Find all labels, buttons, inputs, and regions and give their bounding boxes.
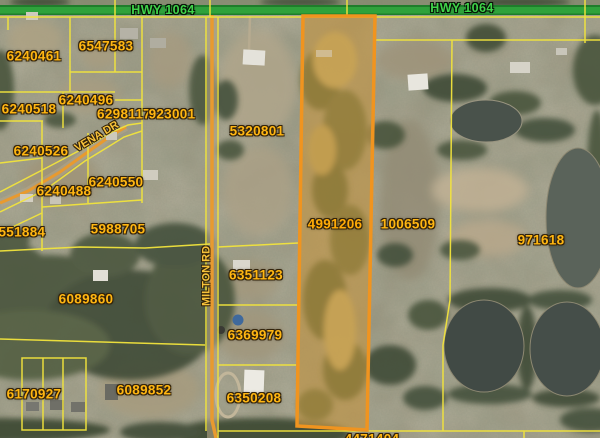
parcel-label-6240488[interactable]: 6240488	[37, 184, 92, 198]
parcel-label-6551884[interactable]: 6551884	[0, 225, 45, 239]
parcel-label-6240496[interactable]: 6240496	[59, 93, 114, 107]
parcel-label-971618[interactable]: 971618	[518, 233, 565, 247]
parcel-label-6351123[interactable]: 6351123	[229, 268, 283, 282]
parcel-label-6240461[interactable]: 6240461	[7, 49, 62, 63]
pond-bottom-right-east	[530, 302, 600, 396]
parcel-label-6298117[interactable]: 6298117	[97, 107, 151, 121]
parcel-label-4471404[interactable]: 4471404	[345, 432, 400, 438]
milton-road-label: MILTON RD	[202, 246, 213, 306]
pond-top-right	[450, 100, 522, 142]
pond-bottom-right-west	[444, 300, 524, 392]
parcel-label-923001[interactable]: 923001	[149, 107, 196, 121]
parcel-label-6547583[interactable]: 6547583	[79, 39, 134, 53]
highway-1064-label-west: HWY 1064	[131, 4, 194, 17]
parcel-label-5988705[interactable]: 5988705	[91, 222, 146, 236]
parcel-label-6089860[interactable]: 6089860	[59, 292, 114, 306]
parcel-label-6240526[interactable]: 6240526	[14, 144, 69, 158]
parcel-label-6350208[interactable]: 6350208	[227, 391, 282, 405]
parcel-label-6089852[interactable]: 6089852	[117, 383, 172, 397]
aerial-basemap	[0, 0, 600, 438]
highway-1064-label-east: HWY 1064	[430, 2, 493, 15]
parcel-label-6240550[interactable]: 6240550	[89, 175, 144, 189]
parcel-label-6170927[interactable]: 6170927	[7, 387, 62, 401]
parcel-label-1006509[interactable]: 1006509	[381, 217, 436, 231]
parcel-label-5320801[interactable]: 5320801	[230, 124, 285, 138]
parcel-label-4991206-selected[interactable]: 4991206	[308, 217, 363, 231]
parcel-label-6369979[interactable]: 6369979	[228, 328, 283, 342]
parcel-map-viewport[interactable]: HWY 1064 HWY 1064 MILTON RD VENA DR 6240…	[0, 0, 600, 438]
parcel-label-6240518[interactable]: 6240518	[2, 102, 57, 116]
